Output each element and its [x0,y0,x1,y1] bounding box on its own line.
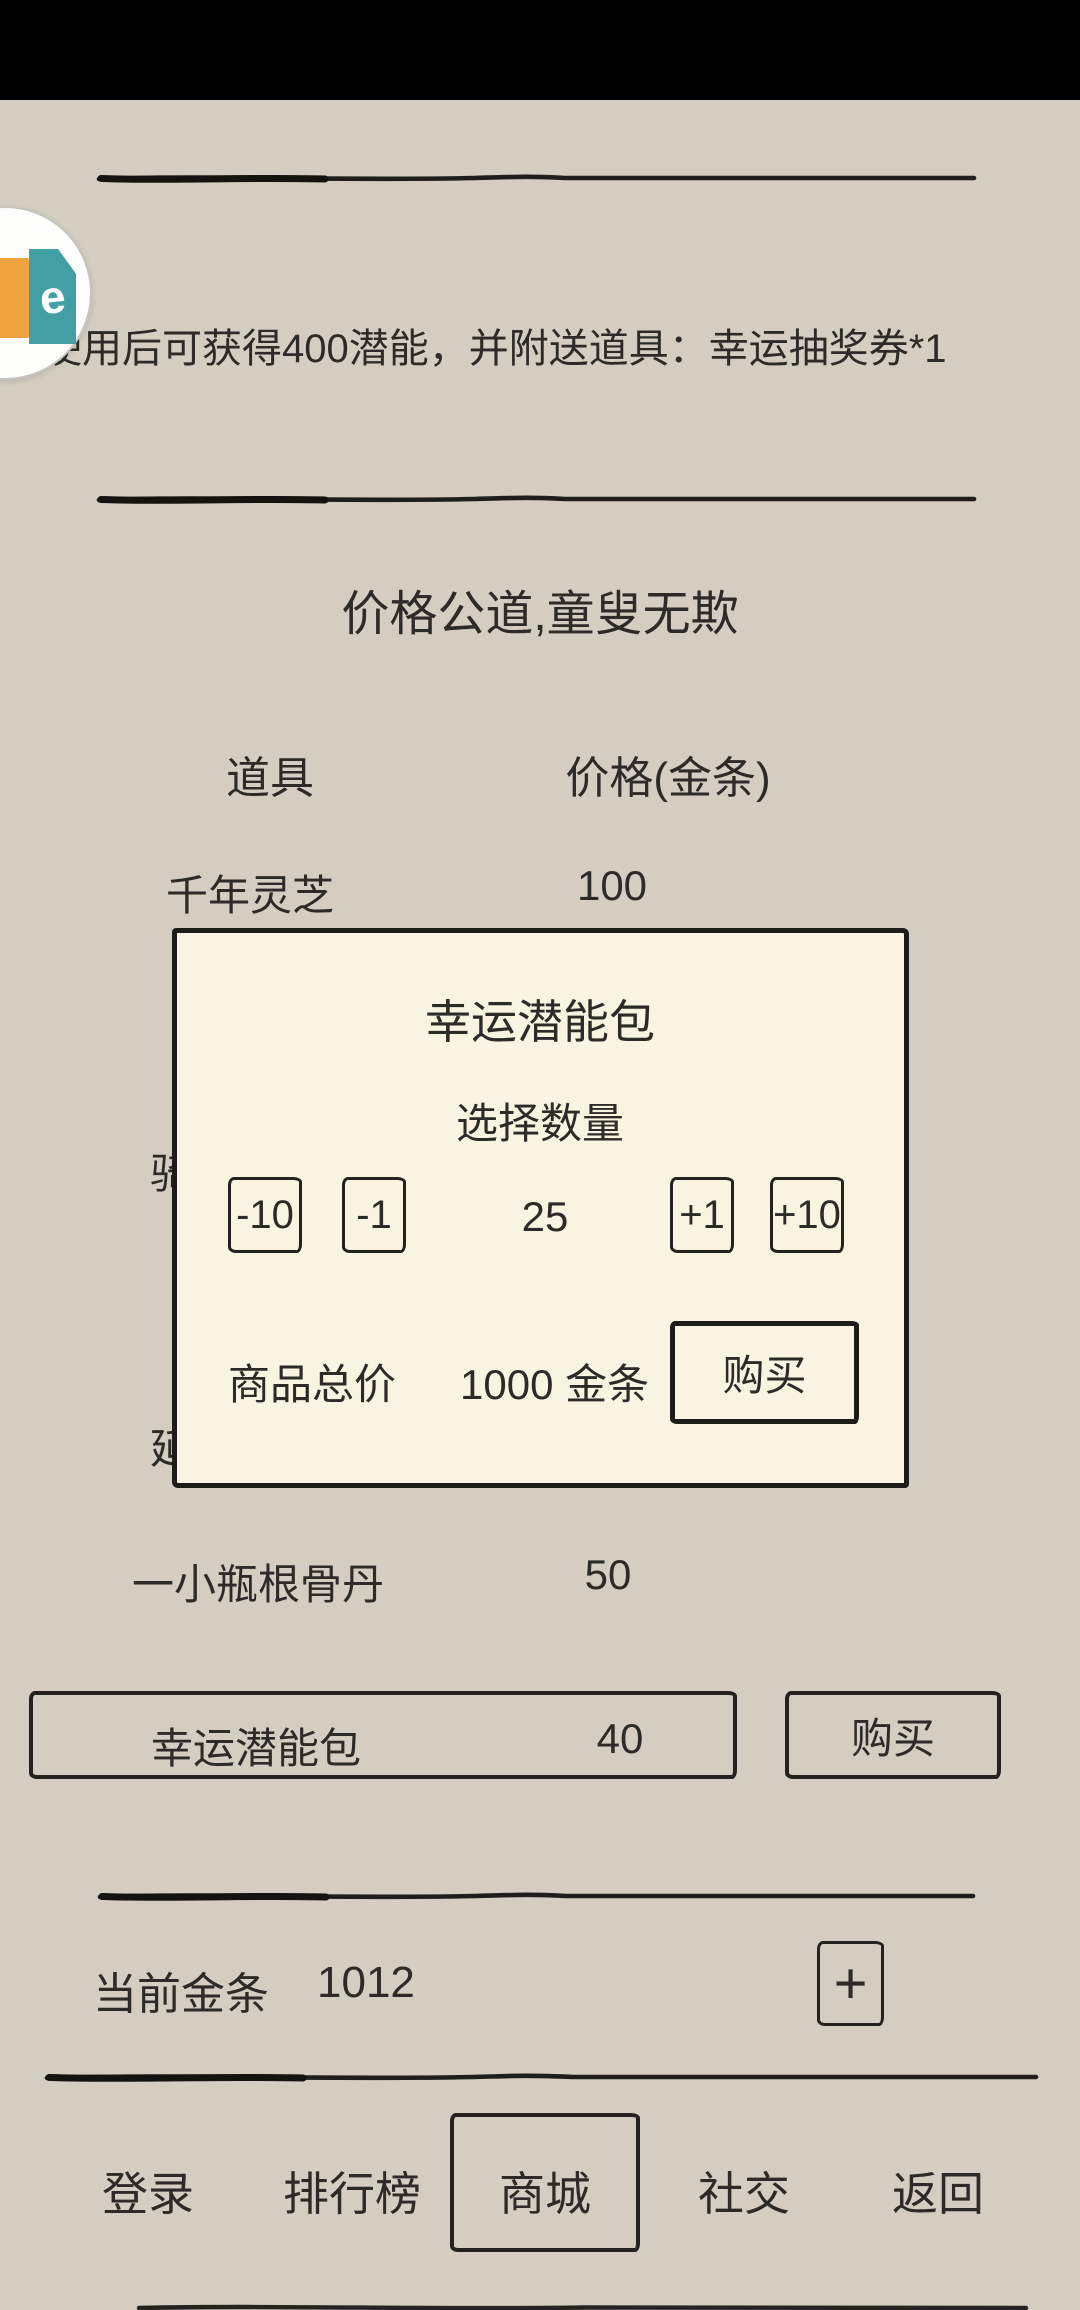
total-price-value: 1000 金条 [460,1351,649,1412]
nav-item-leaderboard[interactable]: 排行榜 [283,2158,421,2224]
column-header-item: 道具 [226,742,314,806]
item-price: 40 [597,1715,644,1763]
divider [95,172,978,184]
increase-1-button[interactable]: +1 [670,1177,734,1253]
shop-motto: 价格公道,童叟无欺 [341,574,738,644]
shop-row[interactable]: 千年灵芝 100 [0,862,1080,908]
row-buy-button[interactable]: 购买 [785,1691,1001,1779]
total-price-label: 商品总价 [228,1351,396,1412]
shop-screen: e 使用后可获得400潜能，并附送道具：幸运抽奖券*1 价格公道,童叟无欺 道具… [0,0,1080,2310]
nav-item-social[interactable]: 社交 [698,2158,790,2224]
divider [96,1890,977,1902]
divider [43,2071,1040,2083]
bubble-logo-e-icon: e [24,247,81,346]
dialog-title: 幸运潜能包 [425,986,655,1052]
increase-10-button[interactable]: +10 [770,1177,844,1253]
dialog-subtitle: 选择数量 [456,1090,624,1151]
shop-row-selected[interactable]: 幸运潜能包 40 [29,1691,737,1779]
divider [135,2303,1030,2310]
item-name: 一小瓶根骨丹 [132,1551,384,1612]
divider [95,493,978,505]
bubble-logo-orange-block [0,258,29,338]
wallet-label: 当前金条 [93,1958,269,2022]
add-gold-button[interactable]: + [817,1941,884,2026]
quantity-value: 25 [522,1193,569,1241]
decrease-1-button[interactable]: -1 [342,1177,406,1253]
column-header-price: 价格(金条) [565,742,770,806]
item-name: 幸运潜能包 [151,1715,361,1776]
decrease-10-button[interactable]: -10 [228,1177,302,1253]
purchase-dialog: 幸运潜能包 选择数量 -10 -1 25 +1 +10 商品总价 1000 金条… [172,928,909,1488]
nav-item-shop[interactable]: 商城 [499,2158,591,2224]
dialog-buy-button[interactable]: 购买 [670,1321,859,1424]
wallet-value: 1012 [317,1958,415,2008]
status-bar [0,0,1080,100]
shop-row[interactable]: 一小瓶根骨丹 50 [0,1551,1080,1597]
item-price: 50 [585,1551,632,1599]
item-effect-description: 使用后可获得400潜能，并附送道具：幸运抽奖券*1 [42,316,947,374]
nav-item-back[interactable]: 返回 [892,2158,984,2224]
nav-item-login[interactable]: 登录 [102,2158,194,2224]
item-name: 千年灵芝 [166,862,334,923]
item-price: 100 [577,862,647,910]
